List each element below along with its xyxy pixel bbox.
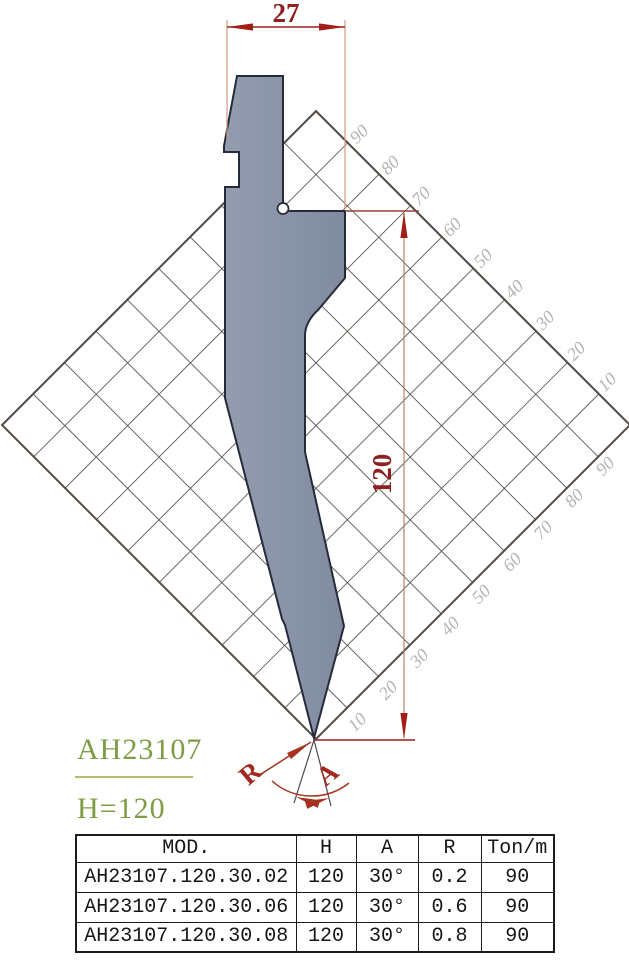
- cell-r: 0.6: [418, 892, 481, 922]
- cell-mod: AH23107.120.30.08: [76, 922, 296, 952]
- cell-a: 30°: [356, 922, 418, 952]
- column-header-a: A: [356, 835, 418, 862]
- column-header-tonm: Ton/m: [481, 835, 554, 862]
- grid-tick-label: 30: [405, 645, 433, 673]
- specification-table: MOD. H A R Ton/m AH23107.120.30.02 120 3…: [75, 834, 555, 953]
- table-row: AH23107.120.30.06 120 30° 0.6 90: [76, 892, 554, 922]
- tool-height-label: H=120: [77, 792, 166, 826]
- cell-mod: AH23107.120.30.06: [76, 892, 296, 922]
- grid-tick-label: 40: [437, 613, 464, 640]
- width-dimension-value: 27: [273, 0, 300, 28]
- cell-tonm: 90: [481, 922, 554, 952]
- column-header-h: H: [296, 835, 356, 862]
- arrowhead-right: [319, 23, 345, 30]
- arrowhead-left: [227, 23, 253, 30]
- radius-label: R: [233, 755, 268, 791]
- cell-r: 0.8: [418, 922, 481, 952]
- radius-arrowhead: [287, 742, 311, 759]
- cell-a: 30°: [356, 862, 418, 892]
- cell-h: 120: [296, 862, 356, 892]
- grid-tick-label: 10: [344, 709, 371, 736]
- angle-label: A: [310, 756, 345, 792]
- column-header-mod: MOD.: [76, 835, 296, 862]
- grid-tick-label: 20: [375, 677, 402, 704]
- column-header-r: R: [418, 835, 481, 862]
- cell-h: 120: [296, 922, 356, 952]
- model-number-label: AH23107: [77, 733, 202, 767]
- arrowhead-down: [400, 713, 407, 739]
- relief-hole: [278, 203, 289, 214]
- cell-tonm: 90: [481, 862, 554, 892]
- model-underline: [75, 776, 193, 778]
- height-dimension-value: 120: [367, 454, 397, 495]
- cell-tonm: 90: [481, 892, 554, 922]
- table-row: AH23107.120.30.08 120 30° 0.8 90: [76, 922, 554, 952]
- cell-a: 30°: [356, 892, 418, 922]
- table-row: AH23107.120.30.02 120 30° 0.2 90: [76, 862, 554, 892]
- cell-h: 120: [296, 892, 356, 922]
- tip-annotations: R A: [233, 740, 349, 809]
- cell-r: 0.2: [418, 862, 481, 892]
- cell-mod: AH23107.120.30.02: [76, 862, 296, 892]
- table-header-row: MOD. H A R Ton/m: [76, 835, 554, 862]
- punch-drawing-page: { "drawing": { "model": "AH23107", "heig…: [0, 0, 629, 960]
